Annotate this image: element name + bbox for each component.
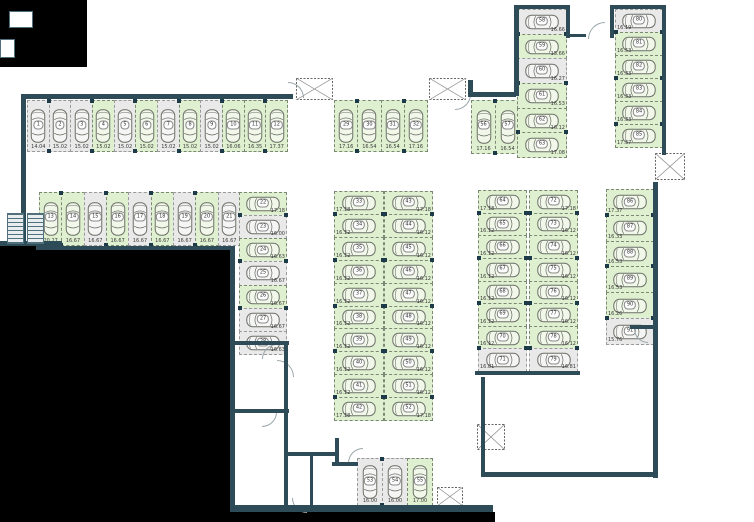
parking-space-45[interactable]: 4516.12 xyxy=(384,237,433,261)
parking-space-89[interactable]: 8916.53 xyxy=(606,266,654,293)
parking-space-62[interactable]: 6216.12 xyxy=(517,108,567,134)
parking-space-2: 215.02 xyxy=(49,100,72,152)
space-number: 22 xyxy=(257,199,269,208)
parking-space-3: 315.02 xyxy=(70,100,93,152)
space-size: 15.02 xyxy=(161,145,175,150)
space-size: 16.67 xyxy=(200,239,214,244)
space-size: 16.12 xyxy=(336,345,350,350)
parking-space-43[interactable]: 4317.18 xyxy=(384,191,433,215)
space-size: 16.06 xyxy=(226,145,240,150)
parking-space-56[interactable]: 5617.16 xyxy=(471,100,496,154)
space-size: 16.12 xyxy=(551,126,565,131)
door-swing-icon xyxy=(588,22,605,39)
space-size: 16.81 xyxy=(562,365,576,370)
parking-space-15: 1516.67 xyxy=(84,192,107,246)
wall xyxy=(21,94,293,99)
crossed-shaft-icon xyxy=(437,487,463,506)
parking-space-76[interactable]: 7616.12 xyxy=(529,281,578,305)
parking-group-bottom-row: 5316.005416.005517.00 xyxy=(358,458,433,506)
parking-space-90[interactable]: 9016.26 xyxy=(606,292,654,319)
parking-space-11[interactable]: 1116.35 xyxy=(244,100,267,152)
space-size: 16.12 xyxy=(417,300,431,305)
space-size: 16.19 xyxy=(617,26,631,31)
space-number: 43 xyxy=(402,198,414,207)
space-number: 42 xyxy=(353,404,365,413)
parking-space-26[interactable]: 2616.67 xyxy=(239,285,287,309)
space-number: 54 xyxy=(389,476,401,485)
parking-space-69[interactable]: 6916.12 xyxy=(478,303,527,327)
space-number: 84 xyxy=(633,108,645,117)
parking-space-7: 715.02 xyxy=(157,100,180,152)
parking-group-second-row: 1320.271416.671516.671616.671716.671816.… xyxy=(40,192,241,246)
space-size: 16.12 xyxy=(336,254,350,259)
parking-group-topright-left: 5816.665915.666016.276116.536216.126317.… xyxy=(517,10,567,158)
space-size: 17.18 xyxy=(480,207,494,212)
space-number: 80 xyxy=(633,16,645,25)
space-size: 16.27 xyxy=(551,77,565,82)
space-number: 29 xyxy=(340,120,352,129)
parking-space-75[interactable]: 7516.12 xyxy=(529,258,578,282)
space-size: 16.12 xyxy=(336,322,350,327)
space-number: 9 xyxy=(207,120,216,129)
crossed-shaft-icon xyxy=(655,153,685,180)
parking-space-16[interactable]: 1616.67 xyxy=(106,192,129,246)
parking-group-rightblock-left: 6417.186516.126616.126716.126816.126916.… xyxy=(478,191,527,372)
space-number: 20 xyxy=(201,213,213,222)
space-size: 17.16 xyxy=(339,145,353,150)
wall xyxy=(468,92,516,97)
space-size: 16.00 xyxy=(388,499,402,504)
space-number: 30 xyxy=(363,120,375,129)
space-size: 15.02 xyxy=(75,145,89,150)
space-size: 16.67 xyxy=(155,239,169,244)
space-number: 59 xyxy=(536,41,548,50)
parking-space-14[interactable]: 1416.67 xyxy=(61,192,84,246)
space-size: 16.12 xyxy=(417,322,431,327)
wall xyxy=(284,341,288,509)
space-size: 16.12 xyxy=(562,252,576,257)
space-number: 31 xyxy=(386,120,398,129)
parking-space-58: 5816.66 xyxy=(517,9,567,35)
space-number: 78 xyxy=(547,332,559,341)
space-size: 16.67 xyxy=(66,239,80,244)
space-number: 51 xyxy=(402,381,414,390)
space-number: 15 xyxy=(89,213,101,222)
parking-space-18[interactable]: 1816.67 xyxy=(151,192,174,246)
space-number: 36 xyxy=(353,267,365,276)
space-size: 17.18 xyxy=(336,208,350,213)
space-number: 37 xyxy=(353,289,365,298)
stairs-icon xyxy=(27,213,44,244)
space-size: 17.37 xyxy=(270,145,284,150)
space-number: 16 xyxy=(111,213,123,222)
space-size: 17.18 xyxy=(336,414,350,419)
parking-space-32[interactable]: 3217.16 xyxy=(404,100,428,152)
space-number: 79 xyxy=(547,355,559,364)
space-number: 76 xyxy=(547,287,559,296)
space-number: 34 xyxy=(353,221,365,230)
space-number: 82 xyxy=(633,62,645,71)
space-size: 15.02 xyxy=(118,145,132,150)
space-size: 15.02 xyxy=(140,145,154,150)
parking-space-84[interactable]: 8416.33 xyxy=(615,101,663,125)
wall xyxy=(332,462,358,466)
exterior-recess xyxy=(9,11,33,28)
space-number: 38 xyxy=(353,312,365,321)
space-size: 16.12 xyxy=(417,391,431,396)
space-number: 49 xyxy=(402,335,414,344)
space-number: 62 xyxy=(536,115,548,124)
space-size: 15.02 xyxy=(53,145,67,150)
space-size: 16.12 xyxy=(562,275,576,280)
wall xyxy=(481,472,658,477)
parking-space-83[interactable]: 8316.33 xyxy=(615,78,663,102)
space-number: 68 xyxy=(496,287,508,296)
parking-space-19: 1916.67 xyxy=(173,192,196,246)
space-size: 16.67 xyxy=(222,239,236,244)
space-number: 87 xyxy=(624,223,636,232)
parking-group-rightblock-right: 7217.187316.127416.127516.127616.127716.… xyxy=(529,191,578,372)
space-size: 16.12 xyxy=(336,231,350,236)
space-number: 63 xyxy=(536,140,548,149)
door-swing-icon xyxy=(348,448,363,463)
parking-space-36[interactable]: 3616.12 xyxy=(334,260,384,284)
parking-space-38[interactable]: 3816.12 xyxy=(334,306,384,330)
space-number: 35 xyxy=(353,244,365,253)
space-number: 74 xyxy=(547,242,559,251)
space-number: 46 xyxy=(402,267,414,276)
space-size: 16.12 xyxy=(480,252,494,257)
parking-space-23: 2316.00 xyxy=(239,215,287,239)
parking-space-44[interactable]: 4416.12 xyxy=(384,214,433,238)
space-size: 16.12 xyxy=(417,254,431,259)
parking-space-10[interactable]: 1016.06 xyxy=(222,100,245,152)
parking-group-top-middle-row: 2917.163016.543116.543217.16 xyxy=(335,100,428,152)
space-number: 69 xyxy=(496,310,508,319)
parking-space-68[interactable]: 6816.12 xyxy=(478,281,527,305)
space-size: 16.12 xyxy=(480,297,494,302)
space-size: 16.12 xyxy=(417,345,431,350)
space-number: 18 xyxy=(156,213,168,222)
space-size: 17.18 xyxy=(417,208,431,213)
space-size: 16.54 xyxy=(362,145,376,150)
wall xyxy=(610,5,666,9)
space-number: 65 xyxy=(496,219,508,228)
space-size: 16.33 xyxy=(617,72,631,77)
wall xyxy=(36,246,234,250)
space-size: 16.33 xyxy=(617,118,631,123)
parking-space-5: 515.02 xyxy=(114,100,137,152)
space-number: 45 xyxy=(402,244,414,253)
parking-space-86[interactable]: 8617.37 xyxy=(606,189,654,216)
parking-space-20[interactable]: 2016.67 xyxy=(195,192,218,246)
parking-space-65[interactable]: 6516.12 xyxy=(478,213,527,237)
space-size: 16.67 xyxy=(271,302,285,307)
space-number: 25 xyxy=(257,268,269,277)
parking-space-61[interactable]: 6116.53 xyxy=(517,83,567,109)
space-size: 16.54 xyxy=(500,147,514,152)
space-size: 16.00 xyxy=(271,232,285,237)
space-number: 8 xyxy=(185,120,194,129)
space-size: 16.67 xyxy=(271,325,285,330)
parking-space-88[interactable]: 8816.53 xyxy=(606,241,654,268)
space-size: 16.81 xyxy=(480,365,494,370)
parking-space-73[interactable]: 7316.12 xyxy=(529,213,578,237)
space-size: 16.12 xyxy=(480,342,494,347)
space-size: 16.12 xyxy=(336,277,350,282)
parking-space-60: 6016.27 xyxy=(517,58,567,84)
space-size: 17.08 xyxy=(551,151,565,156)
space-number: 5 xyxy=(120,120,129,129)
space-size: 17.37 xyxy=(617,141,631,146)
space-size: 16.67 xyxy=(133,239,147,244)
outside-area xyxy=(233,512,495,522)
parking-space-40[interactable]: 4016.12 xyxy=(334,351,384,375)
parking-space-31[interactable]: 3116.54 xyxy=(381,100,405,152)
exterior-recess xyxy=(0,39,15,58)
space-size: 16.00 xyxy=(363,499,377,504)
space-number: 83 xyxy=(633,85,645,94)
space-number: 72 xyxy=(547,197,559,206)
parking-space-79: 7916.81 xyxy=(529,348,578,372)
space-number: 41 xyxy=(353,381,365,390)
space-size: 16.33 xyxy=(617,95,631,100)
space-size: 15.02 xyxy=(96,145,110,150)
space-size: 16.26 xyxy=(608,312,622,317)
parking-space-80: 8016.19 xyxy=(615,9,663,33)
parking-space-50[interactable]: 5016.12 xyxy=(384,351,433,375)
parking-space-41[interactable]: 4116.12 xyxy=(334,374,384,398)
parking-group-right-edge: 8617.378716.338816.538916.539016.269115.… xyxy=(606,190,654,345)
space-size: 17.18 xyxy=(417,414,431,419)
parking-space-85[interactable]: 8517.37 xyxy=(615,124,663,148)
space-size: 16.12 xyxy=(562,229,576,234)
parking-space-22[interactable]: 2217.18 xyxy=(239,192,287,216)
space-size: 17.16 xyxy=(409,145,423,150)
parking-space-81[interactable]: 8116.53 xyxy=(615,32,663,56)
parking-space-66[interactable]: 6616.12 xyxy=(478,235,527,259)
space-number: 7 xyxy=(164,120,173,129)
parking-space-25: 2516.67 xyxy=(239,261,287,285)
wall xyxy=(630,325,656,329)
wall xyxy=(481,377,485,477)
space-size: 17.18 xyxy=(271,209,285,214)
space-number: 57 xyxy=(501,121,513,130)
parking-space-42[interactable]: 4217.18 xyxy=(334,397,384,421)
parking-space-70[interactable]: 7016.12 xyxy=(478,326,527,350)
parking-space-67[interactable]: 6716.12 xyxy=(478,258,527,282)
space-number: 27 xyxy=(257,315,269,324)
parking-space-21: 2116.67 xyxy=(218,192,241,246)
space-size: 16.12 xyxy=(562,320,576,325)
parking-space-64[interactable]: 6417.18 xyxy=(478,190,527,214)
space-number: 71 xyxy=(496,355,508,364)
space-size: 14.04 xyxy=(31,145,45,150)
parking-space-33[interactable]: 3317.18 xyxy=(334,191,384,215)
space-number: 44 xyxy=(402,221,414,230)
space-size: 15.76 xyxy=(608,338,622,343)
space-number: 3 xyxy=(77,120,86,129)
parking-floor-plan: 114.04215.02315.02415.02515.02615.02715.… xyxy=(0,0,754,522)
parking-group-top-left-row: 114.04215.02315.02415.02515.02615.02715.… xyxy=(28,100,288,152)
parking-space-48[interactable]: 4816.12 xyxy=(384,306,433,330)
wall xyxy=(233,505,493,512)
space-number: 47 xyxy=(402,289,414,298)
parking-space-47[interactable]: 4716.12 xyxy=(384,283,433,307)
parking-space-55[interactable]: 5517.00 xyxy=(407,458,433,506)
space-size: 17.18 xyxy=(562,207,576,212)
space-number: 40 xyxy=(353,358,365,367)
space-number: 2 xyxy=(55,120,64,129)
space-size: 16.12 xyxy=(480,229,494,234)
space-number: 1 xyxy=(34,120,43,129)
space-number: 66 xyxy=(496,242,508,251)
space-number: 85 xyxy=(633,131,645,140)
parking-space-30[interactable]: 3016.54 xyxy=(357,100,381,152)
space-size: 16.53 xyxy=(617,49,631,54)
space-size: 16.67 xyxy=(88,239,102,244)
space-number: 32 xyxy=(410,120,422,129)
parking-space-78[interactable]: 7816.12 xyxy=(529,326,578,350)
space-number: 24 xyxy=(257,245,269,254)
parking-space-39[interactable]: 3916.12 xyxy=(334,328,384,352)
space-number: 70 xyxy=(496,332,508,341)
parking-group-middle-pair: 5617.165716.54 xyxy=(472,100,520,154)
parking-space-51[interactable]: 5116.12 xyxy=(384,374,433,398)
space-size: 16.12 xyxy=(336,391,350,396)
space-number: 64 xyxy=(496,197,508,206)
space-number: 23 xyxy=(257,222,269,231)
wall xyxy=(230,246,235,512)
space-number: 26 xyxy=(257,291,269,300)
space-number: 88 xyxy=(624,249,636,258)
parking-space-9: 915.02 xyxy=(200,100,223,152)
space-size: 16.66 xyxy=(551,28,565,33)
outside-area xyxy=(0,246,233,522)
parking-space-63[interactable]: 6317.08 xyxy=(517,132,567,158)
parking-space-52[interactable]: 5217.18 xyxy=(384,397,433,421)
space-size: 16.12 xyxy=(336,300,350,305)
parking-space-1: 114.04 xyxy=(27,100,50,152)
space-size: 16.67 xyxy=(177,239,191,244)
parking-space-77[interactable]: 7716.12 xyxy=(529,303,578,327)
space-size: 17.37 xyxy=(608,209,622,214)
space-size: 16.12 xyxy=(417,368,431,373)
parking-space-87[interactable]: 8716.33 xyxy=(606,215,654,242)
space-number: 48 xyxy=(402,312,414,321)
wall xyxy=(653,182,658,478)
space-size: 17.16 xyxy=(476,147,490,152)
parking-group-center-right: 4317.184416.124516.124616.124716.124816.… xyxy=(384,192,433,421)
wall xyxy=(233,341,289,345)
space-number: 33 xyxy=(353,198,365,207)
space-size: 15.66 xyxy=(551,52,565,57)
space-number: 67 xyxy=(496,265,508,274)
space-number: 19 xyxy=(178,213,190,222)
space-number: 50 xyxy=(402,358,414,367)
parking-group-left-column: 2217.182316.002416.632516.672616.672716.… xyxy=(239,193,287,355)
parking-space-34[interactable]: 3416.12 xyxy=(334,214,384,238)
parking-space-49[interactable]: 4916.12 xyxy=(384,328,433,352)
space-size: 16.63 xyxy=(271,255,285,260)
parking-group-topright-outer: 8016.198116.538216.338316.338416.338517.… xyxy=(615,10,663,148)
wall xyxy=(610,5,614,38)
space-size: 16.53 xyxy=(551,102,565,107)
parking-space-71: 7116.81 xyxy=(478,348,527,372)
space-size: 16.12 xyxy=(480,320,494,325)
space-number: 14 xyxy=(67,213,79,222)
wall xyxy=(514,5,519,96)
space-size: 15.02 xyxy=(205,145,219,150)
space-number: 90 xyxy=(624,300,636,309)
parking-space-4[interactable]: 415.02 xyxy=(92,100,115,152)
space-size: 17.00 xyxy=(413,499,427,504)
parking-space-46[interactable]: 4616.12 xyxy=(384,260,433,284)
parking-group-center-left: 3317.183416.123516.123616.123716.123816.… xyxy=(334,192,384,421)
wall xyxy=(475,371,580,375)
space-number: 61 xyxy=(536,91,548,100)
parking-space-54: 5416.00 xyxy=(382,458,408,506)
parking-space-29[interactable]: 2917.16 xyxy=(334,100,358,152)
space-number: 11 xyxy=(249,120,261,129)
parking-space-35[interactable]: 3516.12 xyxy=(334,237,384,261)
space-number: 12 xyxy=(271,120,283,129)
space-number: 81 xyxy=(633,39,645,48)
stairs-icon xyxy=(7,213,24,244)
door-swing-icon xyxy=(262,412,277,427)
parking-space-74[interactable]: 7416.12 xyxy=(529,235,578,259)
space-size: 16.12 xyxy=(480,275,494,280)
parking-space-27: 2716.67 xyxy=(239,308,287,332)
parking-space-24[interactable]: 2416.63 xyxy=(239,238,287,262)
parking-space-8[interactable]: 815.02 xyxy=(179,100,202,152)
parking-space-72[interactable]: 7217.18 xyxy=(529,190,578,214)
wall xyxy=(310,455,313,507)
parking-space-6[interactable]: 615.02 xyxy=(135,100,158,152)
space-number: 52 xyxy=(402,404,414,413)
space-number: 21 xyxy=(223,213,235,222)
space-number: 58 xyxy=(536,17,548,26)
space-size: 15.02 xyxy=(183,145,197,150)
wall xyxy=(662,5,666,155)
space-size: 16.12 xyxy=(562,342,576,347)
space-number: 6 xyxy=(142,120,151,129)
wall xyxy=(233,409,289,413)
wall xyxy=(514,5,570,9)
parking-space-37[interactable]: 3716.12 xyxy=(334,283,384,307)
space-number: 55 xyxy=(414,476,426,485)
parking-space-12[interactable]: 1217.37 xyxy=(265,100,288,152)
space-size: 16.54 xyxy=(385,145,399,150)
space-number: 89 xyxy=(624,275,636,284)
parking-space-53: 5316.00 xyxy=(357,458,383,506)
space-size: 16.53 xyxy=(608,286,622,291)
parking-space-82[interactable]: 8216.33 xyxy=(615,55,663,79)
space-size: 16.12 xyxy=(417,231,431,236)
wall xyxy=(566,34,586,37)
parking-space-59[interactable]: 5915.66 xyxy=(517,34,567,60)
space-number: 86 xyxy=(624,197,636,206)
space-number: 77 xyxy=(547,310,559,319)
space-number: 75 xyxy=(547,265,559,274)
space-number: 13 xyxy=(44,213,56,222)
wall xyxy=(287,452,339,456)
space-number: 4 xyxy=(99,120,108,129)
space-number: 17 xyxy=(134,213,146,222)
space-size: 16.35 xyxy=(248,145,262,150)
space-size: 16.12 xyxy=(336,368,350,373)
space-number: 60 xyxy=(536,66,548,75)
